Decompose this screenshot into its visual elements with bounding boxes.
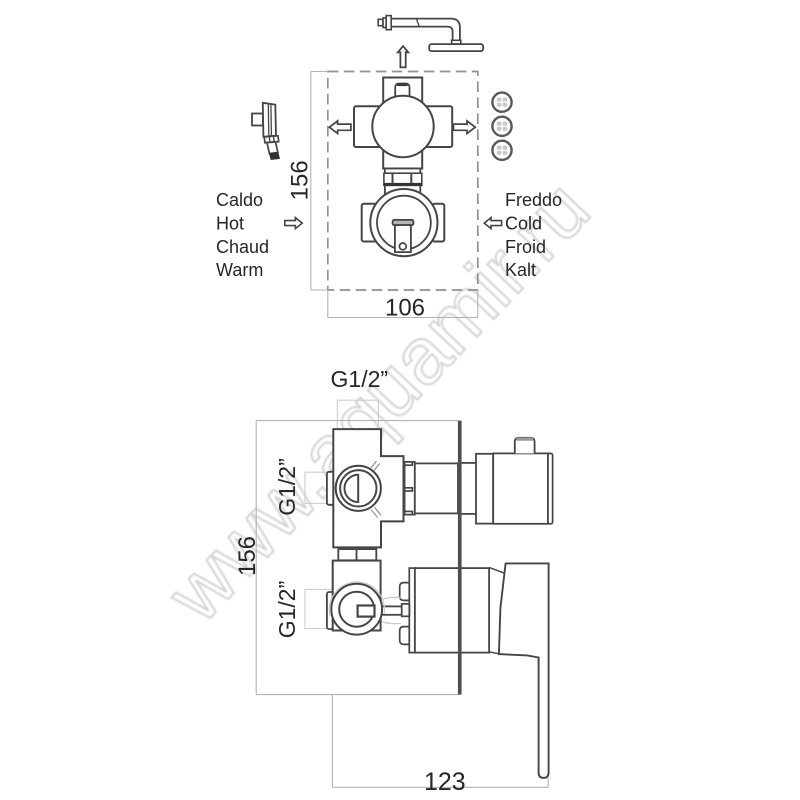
svg-text:Cold: Cold [505, 213, 542, 233]
svg-text:Chaud: Chaud [216, 237, 269, 257]
svg-text:Kalt: Kalt [505, 260, 536, 280]
svg-text:Froid: Froid [505, 237, 546, 257]
svg-text:G1/2”: G1/2” [274, 581, 300, 639]
svg-text:Warm: Warm [216, 260, 263, 280]
svg-text:Hot: Hot [216, 213, 244, 233]
svg-text:Caldo: Caldo [216, 190, 263, 210]
svg-text:156: 156 [234, 536, 261, 576]
svg-text:Freddo: Freddo [505, 190, 562, 210]
svg-text:G1/2”: G1/2” [274, 458, 300, 516]
svg-text:123: 123 [424, 768, 466, 796]
svg-text:106: 106 [385, 295, 425, 322]
svg-text:156: 156 [286, 160, 313, 200]
svg-text:G1/2”: G1/2” [331, 366, 389, 392]
